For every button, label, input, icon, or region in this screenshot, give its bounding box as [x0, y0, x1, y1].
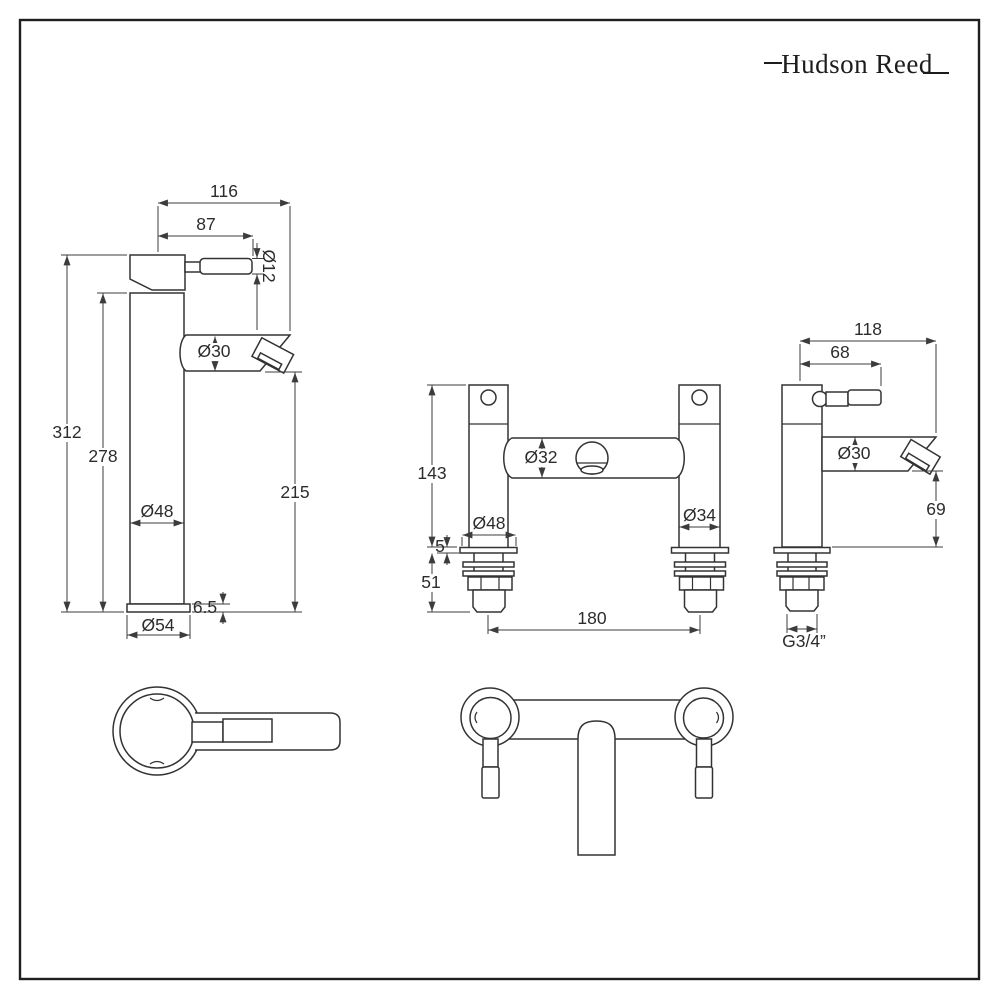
dim-body-diameter: Ø48 — [140, 501, 173, 521]
dim-body-height: 278 — [88, 446, 117, 466]
dim-overall-height: 312 — [52, 422, 81, 442]
tall-tap-outline — [127, 255, 294, 612]
logo-text: Hudson Reed — [781, 49, 933, 79]
dim-total-projection: 118 — [854, 319, 882, 339]
brand-logo: Hudson Reed — [764, 49, 949, 79]
dim-right-column-diameter: Ø34 — [683, 505, 716, 525]
dim-left-column-diameter: Ø48 — [472, 513, 505, 533]
dim-handle-projection: 68 — [830, 342, 849, 362]
dim-base-diameter: Ø54 — [141, 615, 174, 635]
dim-under-deck-length: 51 — [421, 572, 440, 592]
dim-crossbar-diameter: Ø32 — [524, 447, 557, 467]
dim-spout-diameter: Ø30 — [837, 443, 870, 463]
dim-tap-centres: 180 — [577, 608, 606, 628]
dim-handle-projection: 87 — [196, 214, 215, 234]
dim-spout-clearance: 69 — [926, 499, 945, 519]
dim-spout-diameter: Ø30 — [197, 341, 230, 361]
dim-flange-thickness: 5 — [435, 536, 445, 556]
bath-filler-plan-view — [461, 688, 733, 855]
technical-drawing: Hudson Reed 116 87 — [0, 0, 1000, 1000]
bath-filler-side-view: 118 68 Ø30 69 G3/4” — [774, 319, 954, 651]
dim-total-projection: 116 — [210, 181, 238, 201]
bath-filler-outline — [460, 385, 729, 612]
technical-drawing-page: Hudson Reed 116 87 — [0, 0, 1000, 1000]
dim-spout-height: 215 — [280, 482, 309, 502]
dim-thread-size: G3/4” — [782, 631, 826, 651]
dim-handle-diameter: Ø12 — [259, 249, 279, 282]
bath-filler-front-view: 143 Ø48 Ø32 Ø34 5 51 — [413, 385, 729, 634]
tall-tap-plan-view — [113, 687, 340, 775]
bath-filler-side-outline — [774, 385, 940, 611]
bath-filler-dimensions: 143 Ø48 Ø32 Ø34 5 51 — [413, 385, 720, 634]
dim-base-thickness: 6.5 — [193, 597, 217, 617]
tall-tap-front-view: 116 87 Ø12 Ø30 215 312 — [48, 181, 314, 639]
dim-body-height: 143 — [417, 463, 446, 483]
